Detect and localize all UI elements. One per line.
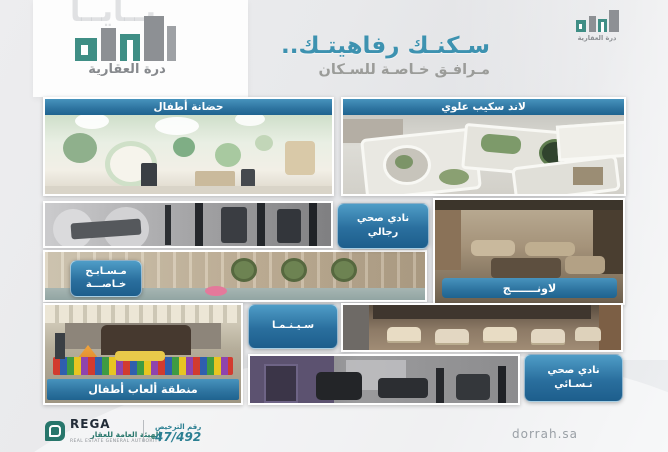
dorrah-mini-logo: درة العقارية xyxy=(558,8,636,44)
womens-club-badge: نادي صحي نـسـائي xyxy=(524,354,623,402)
website-link[interactable]: dorrah.sa xyxy=(512,427,578,441)
license-number: 47/492 xyxy=(155,431,201,443)
photo-playground: منطقة ألعاب أطفال xyxy=(43,303,243,405)
womens-club-line1: نادي صحي xyxy=(547,365,599,378)
pools-line1: مـسـابـح xyxy=(85,266,126,279)
license-block: رقم الترخيص 47/492 xyxy=(155,423,201,443)
photo-landscape: لاند سكيب علوي xyxy=(341,97,626,196)
cinema-label: سـيـنـمـا xyxy=(272,320,314,333)
dorrah-logo: درة العقارية xyxy=(75,14,179,80)
lounge-label: لاونـــــــج xyxy=(503,282,556,295)
rega-icon xyxy=(45,421,65,441)
playground-label-bar: منطقة ألعاب أطفال xyxy=(47,379,239,400)
photo-womens-gym xyxy=(248,354,520,405)
rega-english-name: REAL ESTATE GENERAL AUTHORITY xyxy=(70,440,161,445)
nursery-label-bar: حضانة أطفال xyxy=(45,99,332,115)
mens-club-line2: رجالي xyxy=(368,227,399,240)
rega-name: REGA xyxy=(70,418,161,430)
photo-pool: مـسـابـح خـاصـــة xyxy=(43,250,427,302)
headline-group: سـكنـك رفاهيتـك.. مـرافـق خـاصـة للسـكان xyxy=(220,34,490,78)
womens-club-line2: نـسـائي xyxy=(554,379,592,392)
dorrah-logo-tagline: درة العقارية xyxy=(63,62,191,77)
pools-line2: خـاصـــة xyxy=(86,279,126,292)
mens-club-line1: نادي صحي xyxy=(357,213,409,226)
poster-page: بــايــا درة العقارية سـكنـك رفاهيتـك.. … xyxy=(0,0,668,452)
photo-nursery: حضانة أطفال xyxy=(43,97,334,196)
subheadline-text: مـرافـق خـاصـة للسـكان xyxy=(220,62,490,78)
mens-club-badge: نادي صحي رجالي xyxy=(337,203,429,249)
photo-lounge: لاونـــــــج xyxy=(433,198,625,305)
nursery-label: حضانة أطفال xyxy=(154,101,224,113)
landscape-label-bar: لاند سكيب علوي xyxy=(343,99,624,115)
rega-text-block: REGA الهيئة العامة للعقار REAL ESTATE GE… xyxy=(70,418,161,444)
cinema-badge: سـيـنـمـا xyxy=(248,304,338,349)
footer-divider xyxy=(143,420,144,442)
photo-cinema xyxy=(341,303,623,352)
landscape-label: لاند سكيب علوي xyxy=(441,101,526,113)
dorrah-mini-logo-tagline: درة العقارية xyxy=(558,34,636,42)
lounge-label-bar: لاونـــــــج xyxy=(442,278,617,298)
rega-arabic-name: الهيئة العامة للعقار xyxy=(70,431,161,439)
playground-label: منطقة ألعاب أطفال xyxy=(88,383,197,396)
headline-text: سـكنـك رفاهيتـك.. xyxy=(220,34,490,59)
photo-mens-gym xyxy=(43,201,333,248)
private-pools-badge: مـسـابـح خـاصـــة xyxy=(70,260,142,297)
footer: REGA الهيئة العامة للعقار REAL ESTATE GE… xyxy=(0,412,668,452)
